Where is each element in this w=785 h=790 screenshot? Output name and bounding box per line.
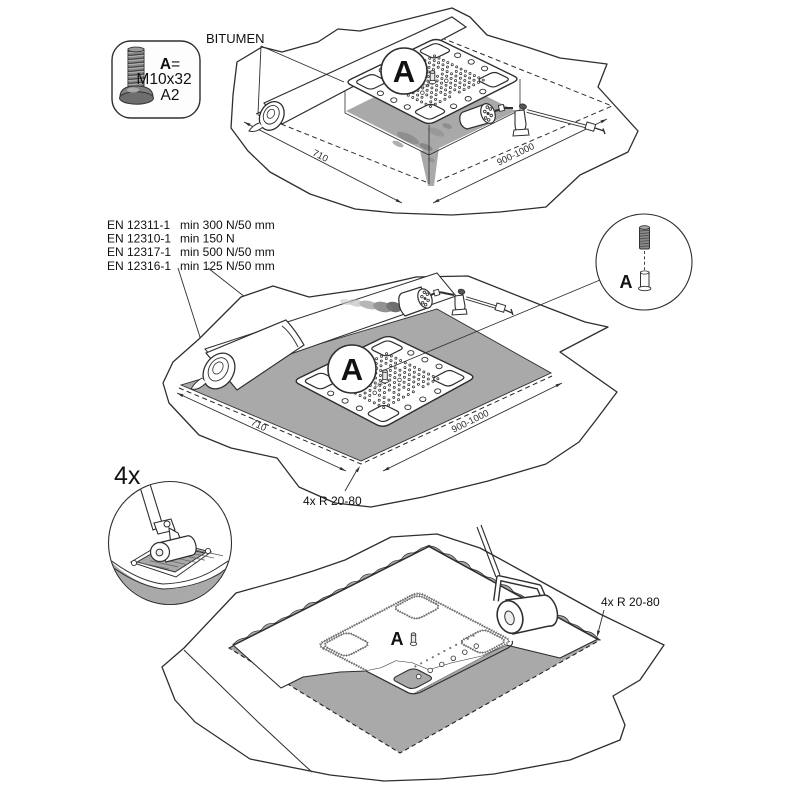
svg-text:A: A — [393, 54, 415, 89]
svg-text:EN 12311-1: EN 12311-1 — [107, 218, 170, 232]
svg-text:EN 12310-1: EN 12310-1 — [107, 232, 171, 246]
svg-text:4x R 20-80: 4x R 20-80 — [303, 494, 362, 508]
svg-text:A: A — [620, 272, 633, 292]
svg-text:BITUMEN: BITUMEN — [206, 31, 265, 46]
svg-text:M10x32: M10x32 — [136, 71, 191, 88]
svg-text:min 125 N/50 mm: min 125 N/50 mm — [180, 259, 275, 273]
svg-text:A: A — [391, 629, 404, 649]
svg-text:EN 12316-1: EN 12316-1 — [107, 259, 171, 273]
svg-text:EN 12317-1: EN 12317-1 — [107, 245, 171, 259]
svg-text:min 500 N/50 mm: min 500 N/50 mm — [180, 245, 275, 259]
svg-text:A2: A2 — [161, 87, 180, 104]
svg-text:A: A — [341, 352, 363, 387]
svg-text:min 300 N/50 mm: min 300 N/50 mm — [180, 218, 275, 232]
svg-text:4x: 4x — [114, 462, 141, 490]
svg-text:4x R 20-80: 4x R 20-80 — [601, 595, 660, 609]
svg-text:min 150 N: min 150 N — [180, 232, 235, 246]
